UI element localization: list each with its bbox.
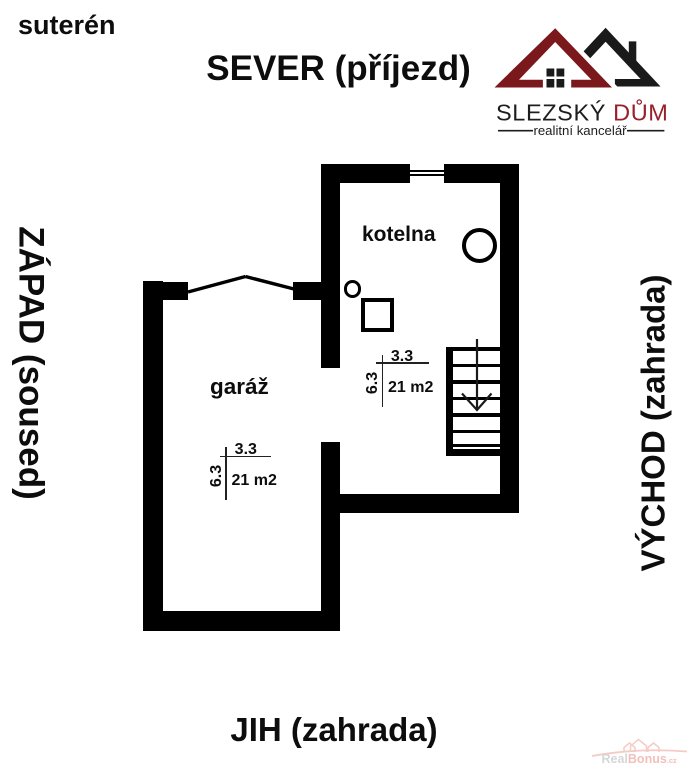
svg-text:realitní kancelář: realitní kancelář: [533, 123, 627, 138]
svg-text:RealBonus.cz: RealBonus.cz: [602, 752, 678, 766]
svg-text:SLEZSKÝ DŮM: SLEZSKÝ DŮM: [496, 98, 668, 126]
